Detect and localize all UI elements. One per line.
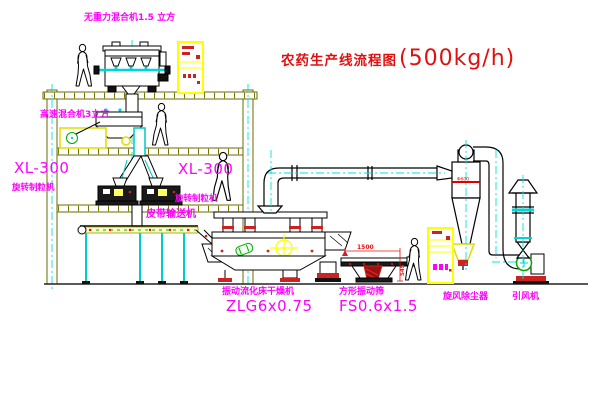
granulator-discharge-duct: [132, 205, 142, 227]
label-granulator-left-model: XL-300: [14, 161, 69, 176]
dryer-nozzles: [222, 218, 323, 232]
fluid-bed-dryer: [212, 212, 351, 282]
cad-flow-diagram: 1500 545 Φ600 农药生产线流程图 (500kg/h) 无重力混合机1…: [0, 0, 600, 403]
cyclone-dim: Φ600: [457, 177, 469, 183]
person-roof: [76, 44, 92, 86]
label-cyclone: 旋风除尘器: [443, 293, 488, 302]
cyclone-separator: [452, 140, 480, 270]
person-floor2: [153, 103, 169, 145]
dryer-discharge-box: [325, 232, 351, 250]
sieve-length-dim: 1500: [357, 244, 374, 251]
title-text: 农药生产线流程图: [281, 49, 397, 69]
label-granulator-left-name: 旋转制粒机: [12, 184, 55, 193]
label-sieve-model: FS0.6x1.5: [339, 299, 418, 314]
control-cabinet-top: [178, 42, 203, 93]
granulator-left: [96, 178, 138, 205]
label-granulator-right-name: 旋转制粒机: [175, 195, 218, 204]
belt-conveyor: [78, 226, 198, 284]
label-high-speed-mixer: 高速混合机3立方: [40, 111, 109, 120]
label-granulator-right-model: XL-300: [178, 162, 233, 177]
label-belt-conveyor: 皮带输送机: [146, 210, 196, 220]
exhaust-duct: [258, 150, 452, 213]
label-sieve-name: 方形振动筛: [339, 288, 384, 297]
label-dryer-name: 振动流化床干燥机: [222, 288, 294, 297]
title-capacity: (500kg/h): [399, 46, 515, 71]
gravity-free-mixer: [94, 42, 170, 114]
drawing-title: 农药生产线流程图 (500kg/h): [281, 46, 515, 71]
sieve-height-dim: 545: [400, 264, 406, 276]
label-gravity-mixer: 无重力混合机1.5 立方: [84, 14, 175, 23]
label-dryer-model: ZLG6x0.75: [226, 299, 313, 314]
label-fan: 引风机: [512, 293, 539, 302]
building-floor2-slab: [57, 148, 243, 155]
control-cabinet-dryer: [428, 228, 453, 283]
